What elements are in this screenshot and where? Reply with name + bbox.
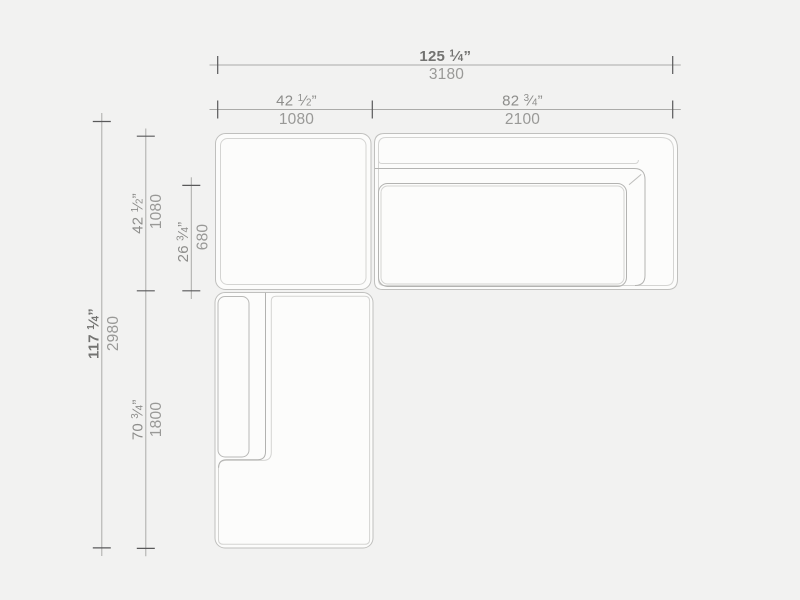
svg-text:2100: 2100	[505, 111, 540, 128]
svg-text:125 1⁄4”: 125 1⁄4”	[419, 48, 471, 65]
svg-text:26 3⁄4”: 26 3⁄4”	[175, 222, 192, 263]
svg-text:42 1⁄2”: 42 1⁄2”	[276, 93, 317, 110]
svg-text:1080: 1080	[148, 194, 165, 229]
svg-text:1080: 1080	[279, 111, 314, 128]
svg-text:42 1⁄2”: 42 1⁄2”	[130, 193, 147, 234]
svg-text:1800: 1800	[148, 402, 165, 437]
svg-text:3180: 3180	[429, 66, 464, 83]
svg-text:680: 680	[195, 224, 212, 251]
svg-text:2980: 2980	[105, 316, 122, 351]
svg-text:117 1⁄4”: 117 1⁄4”	[85, 308, 102, 359]
svg-text:82 3⁄4”: 82 3⁄4”	[502, 93, 543, 110]
svg-text:70 3⁄4”: 70 3⁄4”	[130, 399, 147, 440]
